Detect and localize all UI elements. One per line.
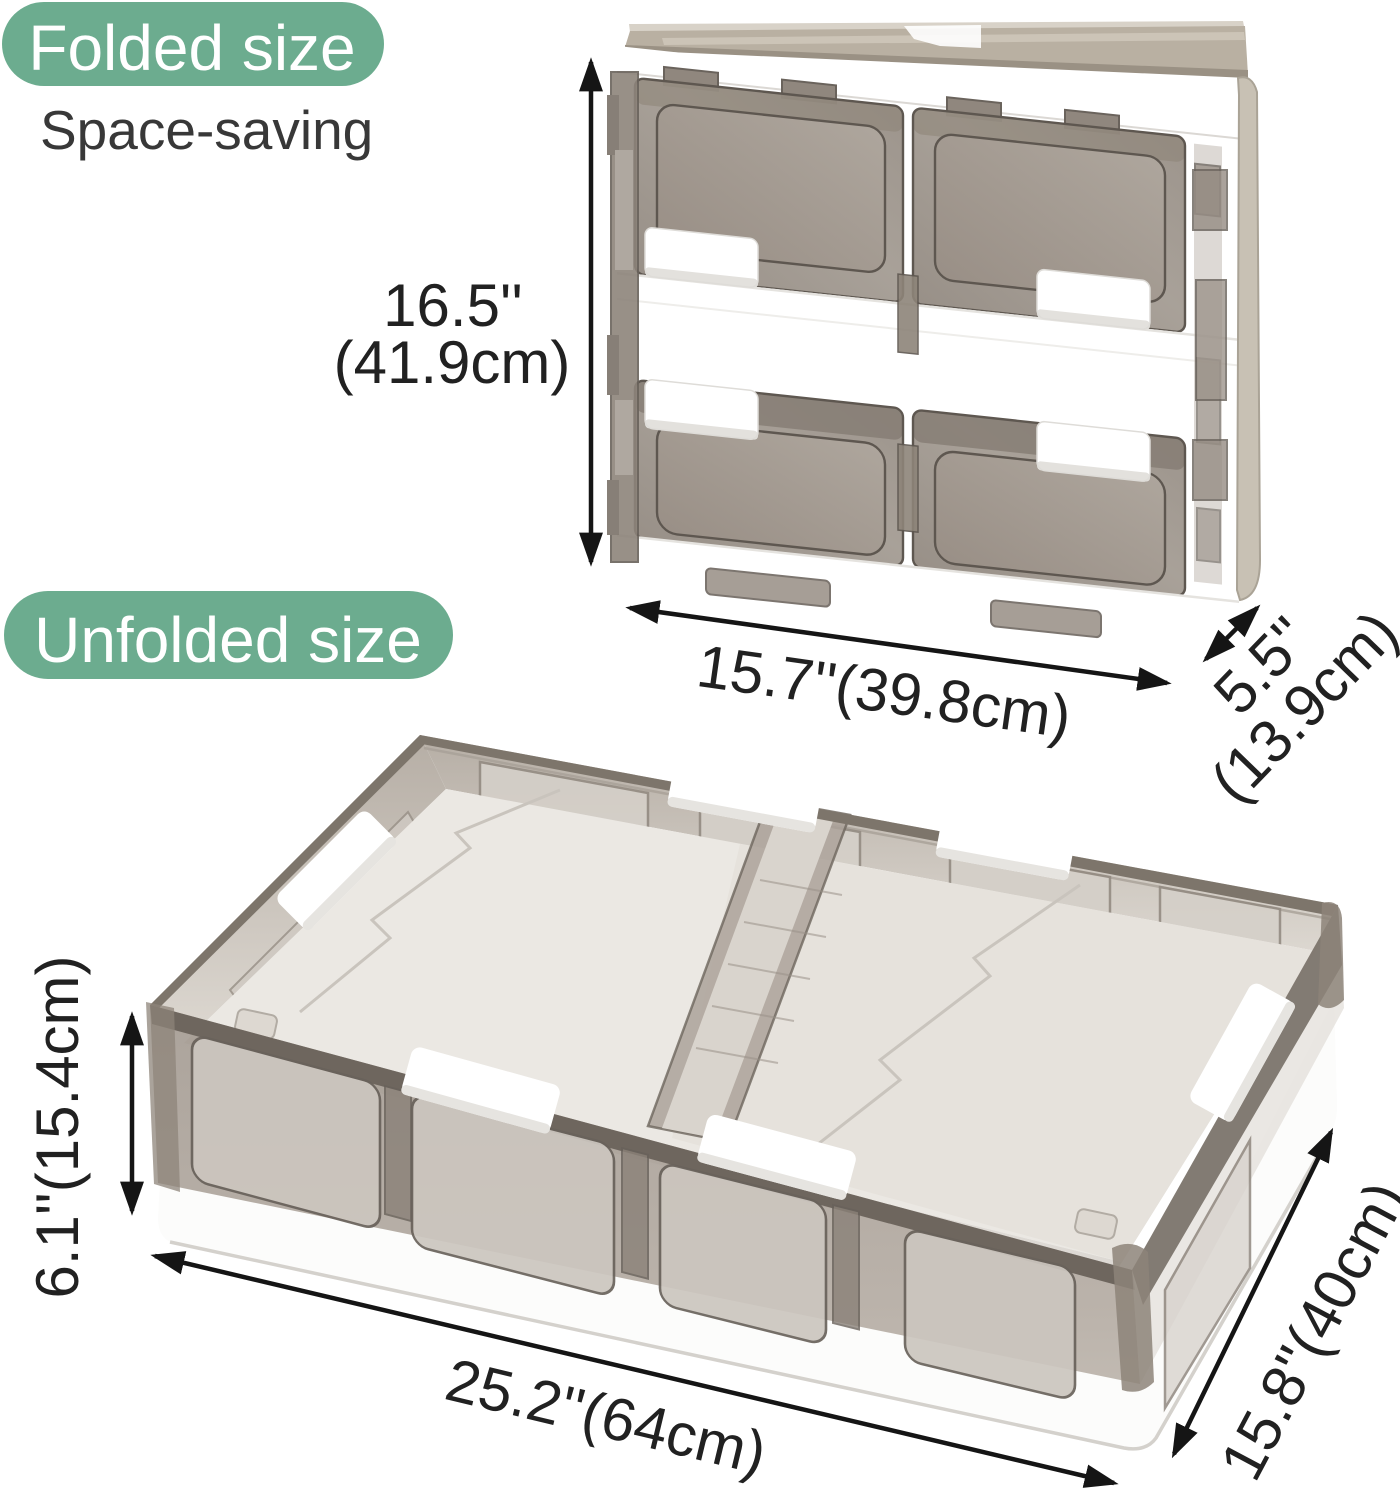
- svg-text:Unfolded size: Unfolded size: [34, 604, 422, 676]
- svg-text:Space-saving: Space-saving: [40, 99, 373, 161]
- svg-text:25.2''(64cm): 25.2''(64cm): [440, 1346, 773, 1487]
- svg-text:Folded size: Folded size: [28, 12, 355, 84]
- svg-text:(41.9cm): (41.9cm): [334, 329, 571, 396]
- svg-text:6.1''(15.4cm): 6.1''(15.4cm): [24, 955, 91, 1298]
- svg-text:15.7''(39.8cm): 15.7''(39.8cm): [693, 632, 1075, 751]
